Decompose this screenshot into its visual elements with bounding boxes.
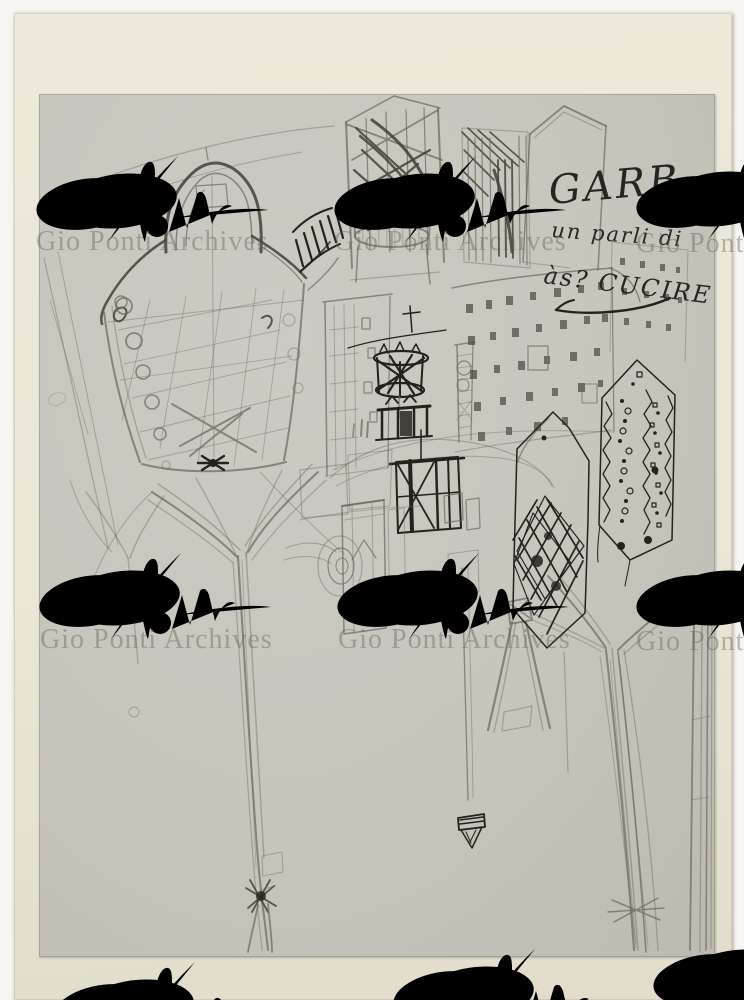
scanned-archive-photo: GARB, un parli di às? CUCIRE [0, 0, 744, 1000]
sketch-paper [39, 94, 715, 957]
